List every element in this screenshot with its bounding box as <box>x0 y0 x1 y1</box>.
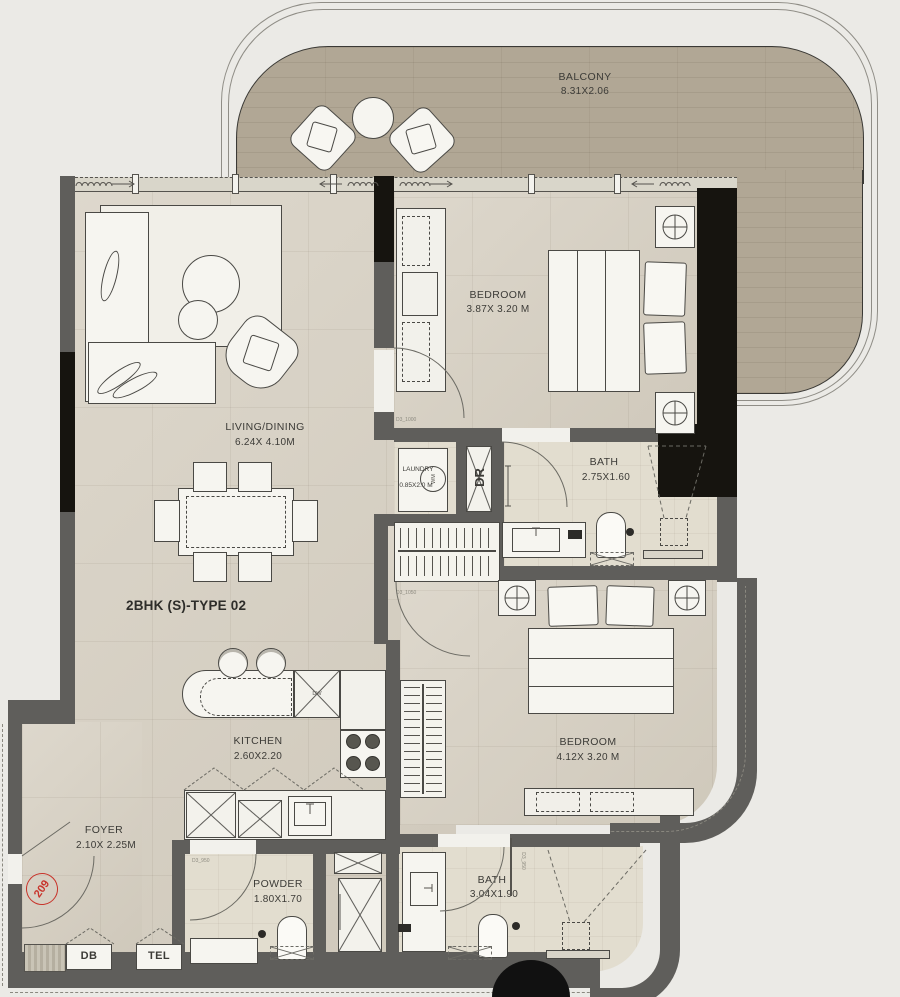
bed1-pillow <box>643 261 687 316</box>
window-mullion <box>330 174 337 194</box>
bath2-sink <box>410 872 438 906</box>
stove-burner <box>346 756 361 771</box>
bath1-shower-bar <box>643 550 703 559</box>
bath2-shower-bar <box>546 950 610 959</box>
window-mullion <box>232 174 239 194</box>
bed2-mattress <box>528 628 674 714</box>
kitchen-stool <box>218 648 248 678</box>
foyer-label: FOYER <box>85 824 123 836</box>
plan-title: 2BHK (S)-TYPE 02 <box>126 598 246 613</box>
door-opening-bath2 <box>438 834 510 847</box>
wall-bath2-left <box>386 854 399 960</box>
bedroom1-wardrobe-shelf <box>402 272 438 316</box>
wardrobe-hangers <box>426 686 442 792</box>
dining-chair <box>238 462 272 492</box>
dining-chair <box>193 552 227 582</box>
door-opening-powder <box>190 840 256 854</box>
bath1-dims: 2.75X1.60 <box>582 472 630 483</box>
kitchen-sink-basin <box>294 802 326 826</box>
bed1-nightstand <box>655 206 695 248</box>
stove-burner <box>365 734 380 749</box>
wall-bedroom1-right <box>697 188 737 432</box>
wardrobe-hangers <box>404 686 420 792</box>
bath2-shower-head <box>562 922 590 950</box>
bath2-label: BATH <box>478 874 507 886</box>
wall-divider-column <box>374 176 394 262</box>
wall-outer-left <box>8 724 22 854</box>
dining-chair <box>193 462 227 492</box>
window-mullion <box>132 174 139 194</box>
window-mullion <box>614 174 621 194</box>
laundry-dims: 0.85X2.0 M <box>399 482 432 489</box>
kitchen-fridge <box>186 792 236 838</box>
window-mullion <box>528 174 535 194</box>
dishwasher-label: DW <box>312 691 321 697</box>
dining-chair <box>238 552 272 582</box>
balcony-table <box>352 97 394 139</box>
floor-plan: BALCONY 8.31X2.06 <box>0 0 900 997</box>
bedroom1-wardrobe-shelf <box>402 322 430 382</box>
dining-chair <box>154 500 180 542</box>
bed1-mattress <box>548 250 640 392</box>
dr-shaft-label: DR <box>472 468 487 487</box>
wall-divider <box>374 262 394 348</box>
stove-burner <box>365 756 380 771</box>
foyer-floor <box>22 722 142 954</box>
shaft-box-small <box>334 852 382 874</box>
powder-vanity <box>190 938 258 964</box>
wall-left-column <box>60 352 75 512</box>
balcony-label: BALCONY <box>559 71 612 83</box>
kitchen-counter-right <box>340 670 386 730</box>
door-opening-bath1 <box>502 428 570 442</box>
wall-kitchen-right <box>386 640 400 854</box>
living-label: LIVING/DINING <box>225 421 304 433</box>
bed1-nightstand <box>655 392 695 434</box>
kitchen-label: KITCHEN <box>234 735 283 747</box>
bedroom2-dims: 4.12X 3.20 M <box>556 752 619 763</box>
bath1-label: BATH <box>590 456 619 468</box>
bedroom2-label: BEDROOM <box>559 736 616 748</box>
coffee-table-small <box>178 300 218 340</box>
bath2-door-tag: D3_950 <box>520 852 526 870</box>
bed2-pillow <box>605 585 654 627</box>
tel-label: TEL <box>148 950 170 962</box>
bath1-mat <box>590 552 634 566</box>
dining-chair <box>292 500 318 542</box>
wall-powder-right <box>313 848 326 960</box>
closet-hangers <box>400 556 494 576</box>
bedroom1-label: BEDROOM <box>469 289 526 301</box>
window-wall <box>60 177 737 192</box>
wall-left-lower <box>60 512 75 724</box>
door-opening-bedroom1 <box>374 350 394 412</box>
balcony-dims: 8.31X2.06 <box>561 86 609 97</box>
db-label: DB <box>81 950 98 962</box>
bedroom1-wardrobe-shelf <box>402 216 430 266</box>
bath2-door-leaf <box>510 838 512 896</box>
powder-dims: 1.80X1.70 <box>254 894 302 905</box>
wall-corridor-left <box>374 526 388 644</box>
shaft-box-tall <box>338 878 382 952</box>
bed2-dresser-drawer <box>536 792 580 812</box>
closet-hangers <box>400 528 494 548</box>
wall-left-upper <box>60 176 75 352</box>
bedroom2-door-tag: D3_1050 <box>396 590 416 596</box>
powder-mat <box>270 946 314 960</box>
stove-burner <box>346 734 361 749</box>
wall-foyer-jog <box>8 700 75 724</box>
powder-label: POWDER <box>253 878 303 890</box>
outer-dashed-line <box>2 724 4 986</box>
bath1-sink <box>512 528 560 552</box>
kitchen-oven <box>238 800 282 838</box>
bed2-nightstand <box>668 580 706 616</box>
bath2-mat <box>448 946 492 960</box>
bath1-shower-head <box>660 518 688 546</box>
kitchen-stool <box>256 648 286 678</box>
laundry-label: LAUNDRY <box>403 466 434 473</box>
wall-bath2-top <box>399 834 640 847</box>
door-opening-entry <box>8 854 22 884</box>
foyer-dims: 2.10X 2.25M <box>76 840 136 851</box>
foyer-shoe-cabinet <box>24 944 66 972</box>
wall-divider-stub <box>374 412 394 440</box>
bed2-nightstand <box>498 580 536 616</box>
wardrobe-rod <box>422 684 424 794</box>
wall-bath1-column <box>658 424 737 497</box>
closet-rod <box>398 550 496 552</box>
wall-bath1-bottom <box>490 566 737 580</box>
powder-door-tag: D3_950 <box>192 858 210 864</box>
bed1-pillow <box>643 321 687 374</box>
dining-table-inner <box>186 496 286 548</box>
kitchen-island-inner <box>200 678 292 716</box>
bed2-dresser-drawer <box>590 792 634 812</box>
living-dims: 6.24X 4.10M <box>235 437 295 448</box>
bedroom1-dims: 3.87X 3.20 M <box>466 304 529 315</box>
bedroom1-door-tag: D3_1000 <box>396 417 416 423</box>
bed2-pillow <box>547 585 598 627</box>
kitchen-dims: 2.60X2.20 <box>234 751 282 762</box>
